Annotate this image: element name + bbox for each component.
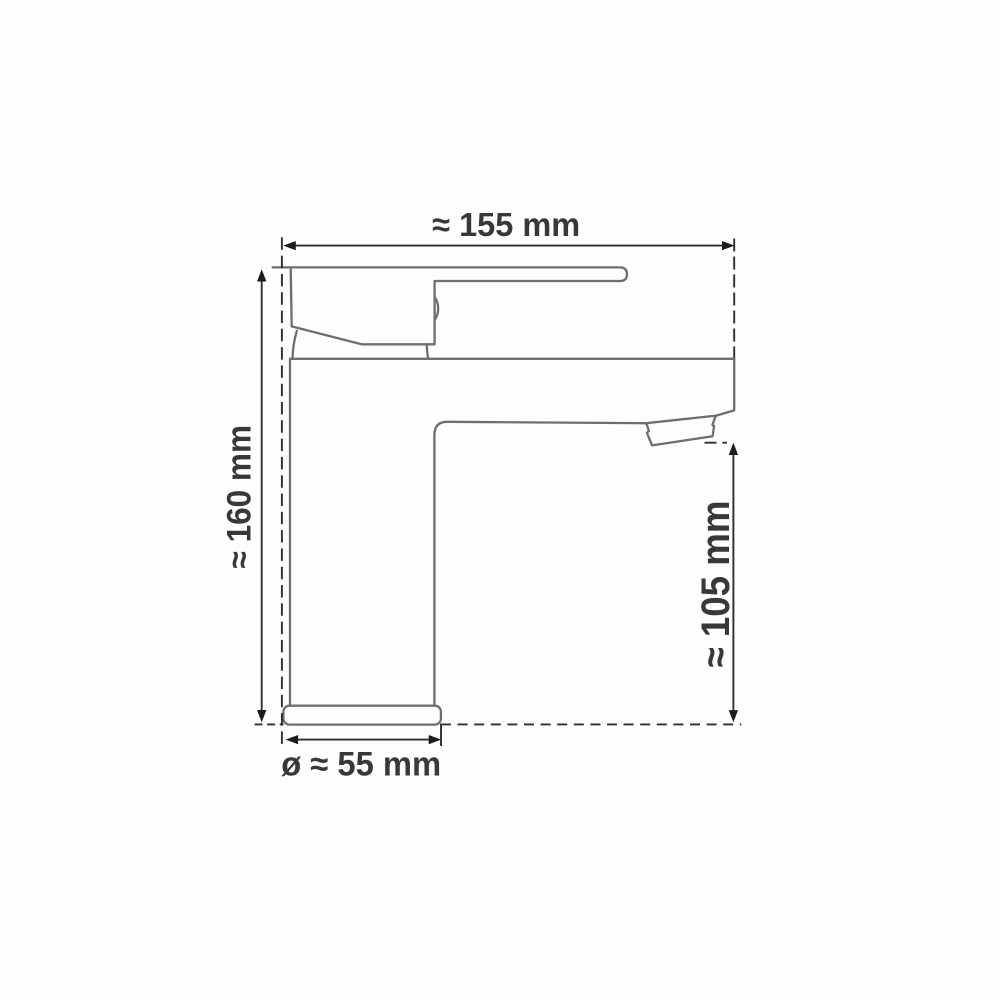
svg-text:≈ 160 mm: ≈ 160 mm	[221, 425, 259, 569]
svg-text:ø ≈ 55 mm: ø ≈ 55 mm	[281, 746, 441, 784]
svg-text:≈ 155 mm: ≈ 155 mm	[432, 207, 580, 244]
svg-text:≈ 105 mm: ≈ 105 mm	[694, 501, 738, 668]
